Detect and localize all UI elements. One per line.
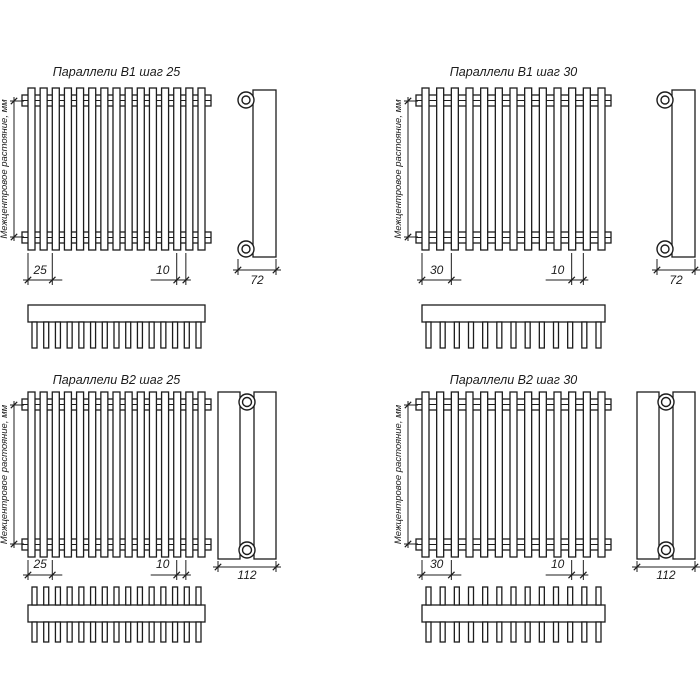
tube-width-value: 10	[551, 263, 565, 277]
tube	[554, 88, 561, 250]
panel-title: Параллели В2 шаг 25	[53, 373, 181, 387]
comb-tooth-bottom	[55, 622, 60, 642]
tube	[495, 392, 502, 557]
side-body	[253, 90, 276, 257]
comb-tooth-top	[596, 587, 601, 605]
axis-label: Межцентровое растояние, мм	[0, 99, 10, 239]
panel-title: Параллели В1 шаг 30	[450, 65, 578, 79]
top-view	[422, 587, 605, 642]
connector-inner-circle	[243, 546, 252, 555]
connector-inner-circle	[661, 96, 669, 104]
comb-tooth-bottom	[426, 322, 431, 348]
comb-tooth-bottom	[483, 622, 488, 642]
tube	[510, 392, 517, 557]
collector-bar	[28, 605, 205, 622]
tube-width-value: 10	[551, 557, 565, 571]
comb-tooth-top	[497, 587, 502, 605]
panel-title: Параллели В2 шаг 30	[450, 373, 578, 387]
tube	[539, 88, 546, 250]
pitch-dimension: 25	[23, 557, 62, 580]
tube	[481, 392, 488, 557]
comb-tooth-bottom	[454, 322, 459, 348]
top-view	[28, 305, 205, 348]
comb-tooth-bottom	[539, 322, 544, 348]
center-distance-dimension: Межцентровое растояние, мм	[0, 401, 24, 548]
comb-tooth-bottom	[497, 322, 502, 348]
tube	[186, 88, 193, 250]
depth-value: 112	[237, 568, 256, 582]
tube	[149, 88, 156, 250]
tube	[583, 88, 590, 250]
depth-value: 72	[669, 273, 683, 287]
panel-b1-step-25: Параллели В1 шаг 25Межцентровое растояни…	[0, 50, 350, 362]
comb-tooth-top	[582, 587, 587, 605]
comb-tooth-bottom	[161, 322, 166, 348]
comb-tooth-top	[126, 587, 131, 605]
tube	[64, 392, 71, 557]
tube-width-dimension: 10	[546, 557, 589, 580]
pitch-dimension: 30	[417, 557, 461, 580]
side-body	[672, 90, 695, 257]
comb-tooth-bottom	[440, 622, 445, 642]
comb-tooth-bottom	[102, 622, 107, 642]
depth-dimension: 112	[213, 561, 281, 582]
comb-tooth-bottom	[32, 622, 37, 642]
pitch-value: 30	[430, 263, 444, 277]
comb-tooth-top	[67, 587, 72, 605]
comb-tooth-top	[440, 587, 445, 605]
comb-tooth-top	[454, 587, 459, 605]
comb-tooth-bottom	[469, 322, 474, 348]
comb-tooth-bottom	[426, 622, 431, 642]
side-view	[657, 90, 695, 257]
panel-b2-step-30: Параллели В2 шаг 30Межцентровое растояни…	[350, 368, 700, 660]
comb-tooth-bottom	[525, 322, 530, 348]
comb-tooth-bottom	[196, 322, 201, 348]
comb-tooth-bottom	[554, 622, 559, 642]
comb-tooth-bottom	[91, 622, 96, 642]
tube	[174, 392, 181, 557]
comb-tooth-bottom	[184, 322, 189, 348]
collector-bar	[422, 305, 605, 322]
top-view	[28, 587, 205, 642]
comb-tooth-bottom	[568, 322, 573, 348]
side-body-front-row	[218, 392, 240, 559]
tube-width-value: 10	[156, 263, 170, 277]
comb-tooth-bottom	[554, 322, 559, 348]
comb-tooth-bottom	[32, 322, 37, 348]
comb-tooth-bottom	[525, 622, 530, 642]
comb-tooth-top	[426, 587, 431, 605]
comb-tooth-bottom	[79, 322, 84, 348]
tube	[89, 392, 96, 557]
tube	[495, 88, 502, 250]
tube	[52, 392, 59, 557]
comb-tooth-bottom	[161, 622, 166, 642]
comb-tooth-bottom	[454, 622, 459, 642]
side-view	[637, 392, 695, 559]
pitch-dimension: 25	[23, 253, 62, 285]
tube	[162, 88, 169, 250]
tube	[101, 88, 108, 250]
connector-inner-circle	[242, 96, 250, 104]
comb-tooth-bottom	[511, 622, 516, 642]
tube	[569, 392, 576, 557]
comb-tooth-bottom	[44, 622, 49, 642]
tube	[101, 392, 108, 557]
panel-title: Параллели В1 шаг 25	[53, 65, 181, 79]
tube	[525, 88, 532, 250]
panel-b1-step-30: Параллели В1 шаг 30Межцентровое растояни…	[350, 50, 700, 362]
tube	[198, 392, 205, 557]
comb-tooth-bottom	[582, 622, 587, 642]
comb-tooth-bottom	[440, 322, 445, 348]
comb-tooth-bottom	[67, 622, 72, 642]
side-view	[238, 90, 276, 257]
panel-b2-step-25: Параллели В2 шаг 25Межцентровое растояни…	[0, 368, 350, 660]
tube	[598, 392, 605, 557]
tube	[437, 392, 444, 557]
tube	[481, 88, 488, 250]
comb-tooth-bottom	[173, 322, 178, 348]
tube	[437, 88, 444, 250]
connector-inner-circle	[242, 245, 250, 253]
collector-bar	[28, 305, 205, 322]
tube	[569, 88, 576, 250]
comb-tooth-bottom	[173, 622, 178, 642]
comb-tooth-top	[525, 587, 530, 605]
comb-tooth-bottom	[568, 622, 573, 642]
tube	[77, 88, 84, 250]
depth-value: 112	[656, 568, 675, 582]
comb-tooth-bottom	[582, 322, 587, 348]
tube	[583, 392, 590, 557]
tube	[539, 392, 546, 557]
comb-tooth-bottom	[596, 622, 601, 642]
tube	[510, 88, 517, 250]
comb-tooth-top	[568, 587, 573, 605]
tube	[466, 88, 473, 250]
comb-tooth-bottom	[184, 622, 189, 642]
tube	[28, 392, 35, 557]
tube	[125, 88, 132, 250]
tube	[149, 392, 156, 557]
comb-tooth-bottom	[511, 322, 516, 348]
comb-tooth-bottom	[67, 322, 72, 348]
comb-tooth-top	[161, 587, 166, 605]
axis-label: Межцентровое растояние, мм	[0, 404, 10, 544]
comb-tooth-bottom	[44, 322, 49, 348]
comb-tooth-bottom	[79, 622, 84, 642]
center-distance-dimension: Межцентровое растояние, мм	[393, 401, 418, 548]
comb-tooth-top	[511, 587, 516, 605]
comb-tooth-bottom	[469, 622, 474, 642]
tube-width-dimension: 10	[151, 253, 191, 285]
side-body-front-row	[637, 392, 659, 559]
comb-tooth-top	[184, 587, 189, 605]
tube	[198, 88, 205, 250]
center-distance-dimension: Межцентровое растояние, мм	[0, 97, 24, 241]
side-body-back-row	[673, 392, 695, 559]
tube	[554, 392, 561, 557]
connector-inner-circle	[662, 398, 671, 407]
tube	[525, 392, 532, 557]
comb-tooth-top	[483, 587, 488, 605]
tube	[137, 88, 144, 250]
tube	[466, 392, 473, 557]
tube	[52, 88, 59, 250]
comb-tooth-bottom	[483, 322, 488, 348]
comb-tooth-bottom	[114, 622, 119, 642]
front-view	[22, 392, 211, 557]
tube	[598, 88, 605, 250]
comb-tooth-bottom	[149, 622, 154, 642]
tube	[137, 392, 144, 557]
depth-dimension: 72	[652, 259, 700, 287]
tube	[113, 392, 120, 557]
tube	[89, 88, 96, 250]
side-body-back-row	[254, 392, 276, 559]
tube-width-value: 10	[156, 557, 170, 571]
pitch-value: 30	[430, 557, 444, 571]
center-distance-dimension: Межцентровое растояние, мм	[393, 97, 418, 241]
comb-tooth-top	[554, 587, 559, 605]
comb-tooth-bottom	[55, 322, 60, 348]
connector-inner-circle	[243, 398, 252, 407]
tube	[40, 392, 47, 557]
tube	[162, 392, 169, 557]
depth-value: 72	[250, 273, 264, 287]
technical-drawing-sheet: Параллели В1 шаг 25Межцентровое растояни…	[0, 0, 700, 700]
comb-tooth-bottom	[596, 322, 601, 348]
tube	[40, 88, 47, 250]
comb-tooth-top	[102, 587, 107, 605]
collector-bar	[422, 605, 605, 622]
tube	[186, 392, 193, 557]
comb-tooth-top	[55, 587, 60, 605]
top-view	[422, 305, 605, 348]
comb-tooth-bottom	[137, 622, 142, 642]
pitch-dimension: 30	[417, 253, 461, 285]
connector-inner-circle	[662, 546, 671, 555]
comb-tooth-bottom	[149, 322, 154, 348]
tube-width-dimension: 10	[546, 253, 589, 285]
comb-tooth-top	[137, 587, 142, 605]
comb-tooth-bottom	[497, 622, 502, 642]
comb-tooth-bottom	[114, 322, 119, 348]
tube	[422, 392, 429, 557]
axis-label: Межцентровое растояние, мм	[393, 404, 404, 544]
comb-tooth-bottom	[126, 622, 131, 642]
comb-tooth-top	[32, 587, 37, 605]
front-view	[416, 88, 611, 250]
axis-label: Межцентровое растояние, мм	[393, 99, 404, 239]
comb-tooth-top	[114, 587, 119, 605]
pitch-value: 25	[32, 557, 47, 571]
front-view	[22, 88, 211, 250]
comb-tooth-bottom	[126, 322, 131, 348]
tube	[64, 88, 71, 250]
tube	[451, 88, 458, 250]
comb-tooth-top	[196, 587, 201, 605]
comb-tooth-top	[469, 587, 474, 605]
comb-tooth-bottom	[91, 322, 96, 348]
tube	[422, 88, 429, 250]
depth-dimension: 112	[632, 561, 700, 582]
depth-dimension: 72	[233, 259, 281, 287]
comb-tooth-top	[44, 587, 49, 605]
pitch-value: 25	[32, 263, 47, 277]
tube	[451, 392, 458, 557]
tube	[174, 88, 181, 250]
comb-tooth-bottom	[137, 322, 142, 348]
tube-width-dimension: 10	[151, 557, 191, 580]
tube	[125, 392, 132, 557]
comb-tooth-bottom	[102, 322, 107, 348]
tube	[28, 88, 35, 250]
comb-tooth-bottom	[196, 622, 201, 642]
connector-inner-circle	[661, 245, 669, 253]
comb-tooth-bottom	[539, 622, 544, 642]
comb-tooth-top	[91, 587, 96, 605]
comb-tooth-top	[149, 587, 154, 605]
tube	[77, 392, 84, 557]
comb-tooth-top	[173, 587, 178, 605]
comb-tooth-top	[539, 587, 544, 605]
tube	[113, 88, 120, 250]
side-view	[218, 392, 276, 559]
comb-tooth-top	[79, 587, 84, 605]
front-view	[416, 392, 611, 557]
